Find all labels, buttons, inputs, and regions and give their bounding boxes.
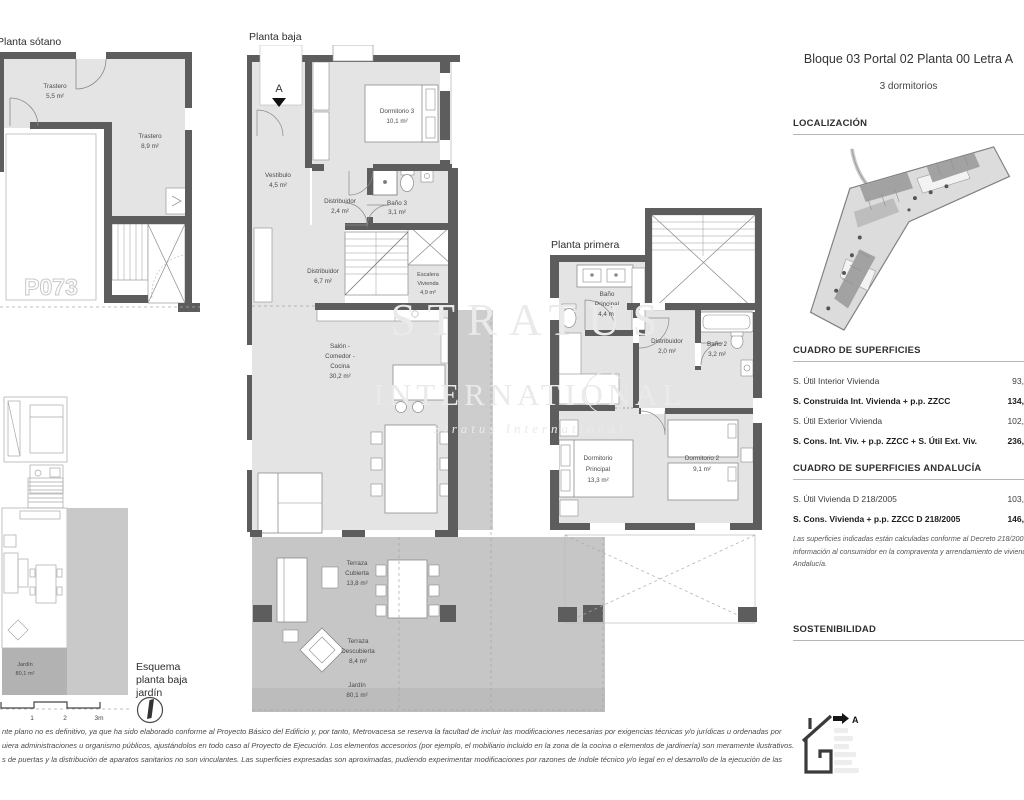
unit-subtitle: 3 dormitorios <box>793 81 1024 92</box>
compass-icon <box>135 694 167 726</box>
esquema-bed <box>30 405 63 453</box>
row-label: S. Cons. Vivienda + p.p. ZZCC D 218/2005 <box>793 514 960 524</box>
room-label: Distribuidor <box>651 338 683 345</box>
sink <box>421 170 433 182</box>
table-row: S. Útil Vivienda D 218/2005 103, <box>793 489 1024 509</box>
esquema-floorplan: Jardín 80,1 m² <box>0 385 132 715</box>
room-area: 13,3 m² <box>587 477 608 484</box>
room-label: Distribuidor <box>324 198 356 205</box>
site-plan-map <box>798 141 1022 333</box>
appliance-icon <box>166 188 188 214</box>
primera-stairs <box>652 215 755 310</box>
room-area: 4,9 m² <box>420 290 436 296</box>
section-superficies: CUADRO DE SUPERFICIES <box>793 345 1024 362</box>
table-row: S. Cons. Int. Viv. + p.p. ZZCC + S. Útil… <box>793 431 1024 451</box>
room-area: 3,1 m² <box>388 209 406 216</box>
room-area: 13,8 m² <box>346 580 367 587</box>
table-row: S. Útil Interior Vivienda 93, <box>793 371 1024 391</box>
andalucia-table: S. Útil Vivienda D 218/2005 103, S. Cons… <box>793 489 1024 529</box>
nightstand <box>560 420 578 436</box>
room-area: 30,2 m² <box>329 373 350 380</box>
scale-label: 2 <box>63 715 67 722</box>
baja-title: Planta baja <box>249 31 302 43</box>
closet-right <box>441 318 448 363</box>
sotano-stairs <box>112 224 185 303</box>
pergola-dashed-region <box>558 535 757 623</box>
nightstand <box>741 448 753 462</box>
room-label: Terraza <box>348 638 369 645</box>
room-label: Comedor - <box>325 353 355 360</box>
toilet <box>731 332 743 349</box>
section-andalucia: CUADRO DE SUPERFICIES ANDALUCÍA <box>793 463 1024 480</box>
entry-walkway: A <box>260 45 302 107</box>
table-row: S. Cons. Vivienda + p.p. ZZCC D 218/2005… <box>793 509 1024 529</box>
row-value: 146, <box>1007 514 1024 524</box>
parking-number: P073 <box>24 274 78 300</box>
esquema-caption-line: planta baja <box>136 674 187 687</box>
room-label: Jardín <box>348 682 366 689</box>
room-label: Baño 3 <box>387 200 407 207</box>
energy-rating-icon: A <box>795 706 870 778</box>
room-label: Terraza <box>347 560 368 567</box>
room-area: 4,5 m² <box>269 182 287 189</box>
outdoor-sofa <box>277 558 307 622</box>
section-localizacion: LOCALIZACIÓN <box>793 118 1024 135</box>
scale-label: 1 <box>30 715 34 722</box>
scale-bar: 1 2 3m <box>0 696 112 724</box>
row-label: S. Útil Interior Vivienda <box>793 376 879 386</box>
room-label: Trastero <box>43 83 67 90</box>
room-label: Vivienda <box>417 281 439 287</box>
room-label: Descubierta <box>341 648 375 655</box>
room-area: 2,4 m² <box>331 208 349 215</box>
room-label: Baño 2 <box>707 341 727 348</box>
esquema-caption-line: Esquema <box>136 661 187 674</box>
pergola-post <box>738 607 757 622</box>
room-label: Cocina <box>330 363 350 370</box>
room-label: Dormitorio 2 <box>685 455 720 462</box>
esquema-sofa <box>4 553 18 593</box>
plan-sheet: Planta sótano Planta baja Planta primera… <box>0 0 1024 800</box>
outdoor-side-table <box>322 567 338 588</box>
room-label: Salón - <box>330 343 350 350</box>
room-label: Principal <box>595 301 619 308</box>
room-label: Trastero <box>138 133 162 140</box>
toilet <box>401 169 415 192</box>
room-label: Vestíbulo <box>265 172 291 179</box>
esquema-gray-block <box>67 508 128 695</box>
rating-bars <box>834 728 859 773</box>
room-label: Baño <box>600 291 615 298</box>
garden-square <box>283 630 298 642</box>
room-area: 3,2 m² <box>708 351 726 358</box>
room-area: 2,0 m² <box>658 348 676 355</box>
room-label: Dormitorio 3 <box>380 108 415 115</box>
row-label: S. Cons. Int. Viv. + p.p. ZZCC + S. Útil… <box>793 436 977 446</box>
bathtub <box>700 312 753 332</box>
bed-single <box>668 420 738 457</box>
row-value: 93, <box>1012 376 1024 386</box>
house-outline <box>803 716 831 772</box>
row-label: S. Construida Int. Vivienda + p.p. ZZCC <box>793 396 950 406</box>
parking-space: P073 <box>6 134 96 300</box>
row-label: S. Útil Exterior Vivienda <box>793 416 882 426</box>
esquema-table <box>36 565 56 603</box>
primera-floorplan: Baño Principal 4,4 m² Distribuidor 2,0 m… <box>545 208 765 632</box>
sotano-floorplan: P073 <box>0 48 200 316</box>
esquema-living <box>2 508 67 648</box>
room-area: 80,1 m² <box>16 671 35 677</box>
primera-title: Planta primera <box>551 239 619 251</box>
row-value: 134, <box>1007 396 1024 406</box>
balcony-planter <box>333 45 373 61</box>
shower <box>373 170 397 195</box>
room-area: 4,4 m² <box>598 311 616 318</box>
disclaimer-line: uiera administraciones u organismo públi… <box>2 741 794 750</box>
toilet <box>562 304 576 328</box>
superficies-table: S. Útil Interior Vivienda 93, S. Constru… <box>793 371 1024 451</box>
vanity <box>577 265 633 287</box>
row-value: 102, <box>1007 416 1024 426</box>
table-row: S. Útil Exterior Vivienda 102, <box>793 411 1024 431</box>
table-row: S. Construida Int. Vivienda + p.p. ZZCC … <box>793 391 1024 411</box>
rating-letter: A <box>852 715 859 725</box>
section-marker-a: A <box>275 83 283 95</box>
row-value: 103, <box>1007 494 1024 504</box>
sotano-title: Planta sótano <box>0 36 61 48</box>
outdoor-dining-table <box>376 560 439 618</box>
room-label: Principal <box>586 466 610 473</box>
room-area: 5,5 m² <box>46 93 64 100</box>
room-area: 6,7 m² <box>314 278 332 285</box>
room-area: 10,1 m² <box>386 118 407 125</box>
row-label: S. Útil Vivienda D 218/2005 <box>793 494 897 504</box>
room-area: 8,9 m² <box>141 143 159 150</box>
nightstand <box>560 500 578 516</box>
andalucia-note: Las superficies indicadas están calculad… <box>793 533 1024 571</box>
room-label: Distribuidor <box>307 268 339 275</box>
section-sostenibilidad: SOSTENIBILIDAD <box>793 624 1024 641</box>
row-value: 236, <box>1007 436 1024 446</box>
room-area: 8,4 m² <box>349 658 367 665</box>
sofa <box>258 473 322 533</box>
room-label: Dormitorio <box>583 455 613 462</box>
esquema-diamond <box>8 620 28 640</box>
rating-arrow-a <box>833 713 849 724</box>
room-label: Cubierta <box>345 570 369 577</box>
esquema-garden-band <box>2 648 67 695</box>
terrace-post <box>253 605 272 622</box>
unit-title: Bloque 03 Portal 02 Planta 00 Letra A <box>793 52 1024 66</box>
pergola-post <box>558 607 577 622</box>
room-area: 80,1 m² <box>346 692 367 699</box>
terrace-post <box>440 605 456 622</box>
room-label: Escalera <box>417 272 440 278</box>
info-panel: Bloque 03 Portal 02 Planta 00 Letra A 3 … <box>793 52 1024 641</box>
sink <box>741 360 753 376</box>
esquema-lines <box>2 397 67 648</box>
disclaimer-line: nte plano no es definitivo, ya que ha si… <box>2 727 781 736</box>
scale-label: 3m <box>94 715 103 722</box>
esquema-bath <box>30 465 63 493</box>
room-label: Jardín <box>17 662 33 668</box>
room-area: 9,1 m² <box>693 466 711 473</box>
closet-left <box>254 228 272 302</box>
disclaimer-line: s de puertas y la distribución de aparat… <box>2 755 782 764</box>
